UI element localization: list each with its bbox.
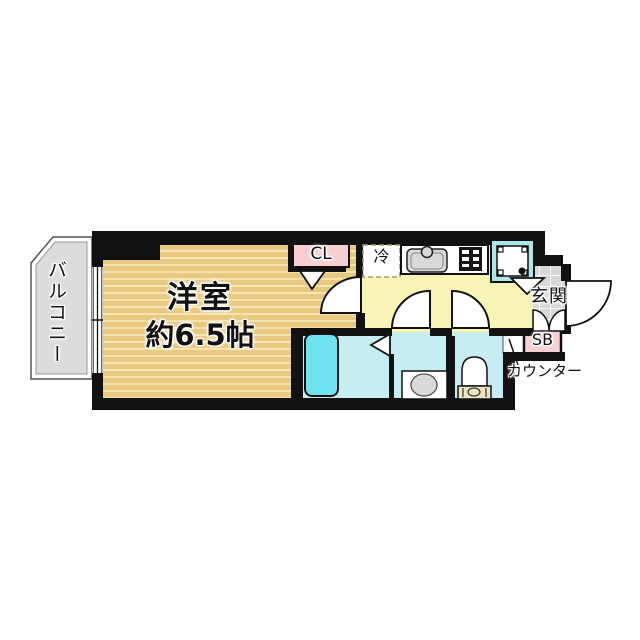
floorplan: バルコニー 洋室 約6.5帖 CL 冷 玄関 SB カウンター — [0, 0, 640, 640]
washbasin-bowl — [411, 374, 437, 396]
room-name-label: 洋室 — [130, 283, 270, 314]
wall-south-corridor-2 — [430, 328, 452, 336]
washbasin — [402, 371, 447, 399]
toilet-bowl — [462, 357, 487, 386]
toilet — [458, 357, 491, 399]
entrance-label: 玄関 — [528, 288, 570, 306]
washing-machine-pan — [491, 240, 534, 282]
wall-counter-bottom — [503, 352, 565, 361]
balcony-window — [92, 267, 103, 373]
wall-genkan-step — [545, 255, 563, 266]
wall-bath-washbasin — [389, 354, 394, 400]
floorplan-drawing — [0, 0, 640, 640]
closet-label: CL — [295, 246, 347, 263]
bathtub — [305, 334, 338, 396]
kitchen-unit — [401, 245, 488, 274]
shoebox-label: SB — [524, 332, 561, 348]
wall-room-bath — [291, 328, 303, 410]
faucet-icon — [422, 247, 433, 258]
refrigerator-label: 冷 — [363, 249, 400, 265]
entrance-door-swing — [566, 281, 611, 326]
balcony-label: バルコニー — [46, 260, 65, 385]
counter-label: カウンター — [507, 364, 582, 379]
wall-south-corridor-1 — [291, 328, 392, 336]
wall-genkan-right-upper — [561, 264, 571, 281]
drain-icon — [519, 268, 526, 275]
room-size-label: 約6.5帖 — [120, 321, 280, 350]
